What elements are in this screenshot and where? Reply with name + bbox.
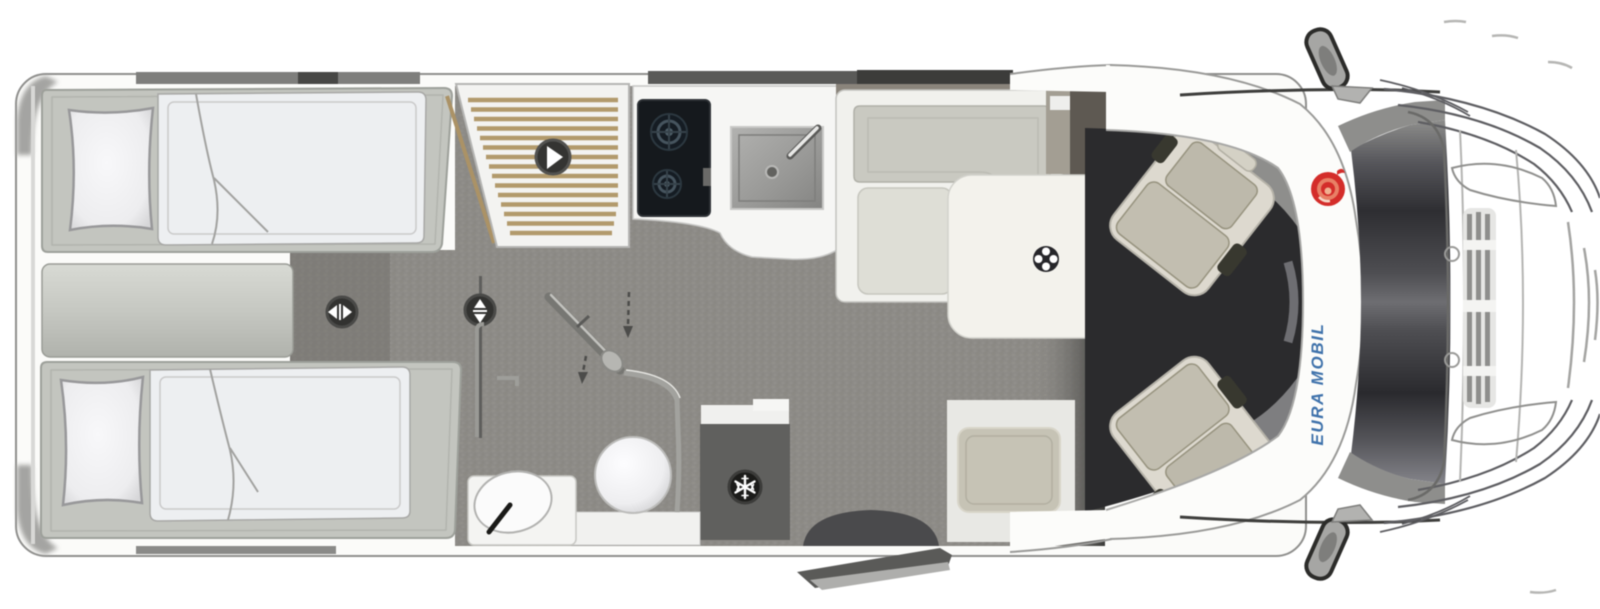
svg-text:EURA MOBIL: EURA MOBIL [1308, 322, 1327, 445]
